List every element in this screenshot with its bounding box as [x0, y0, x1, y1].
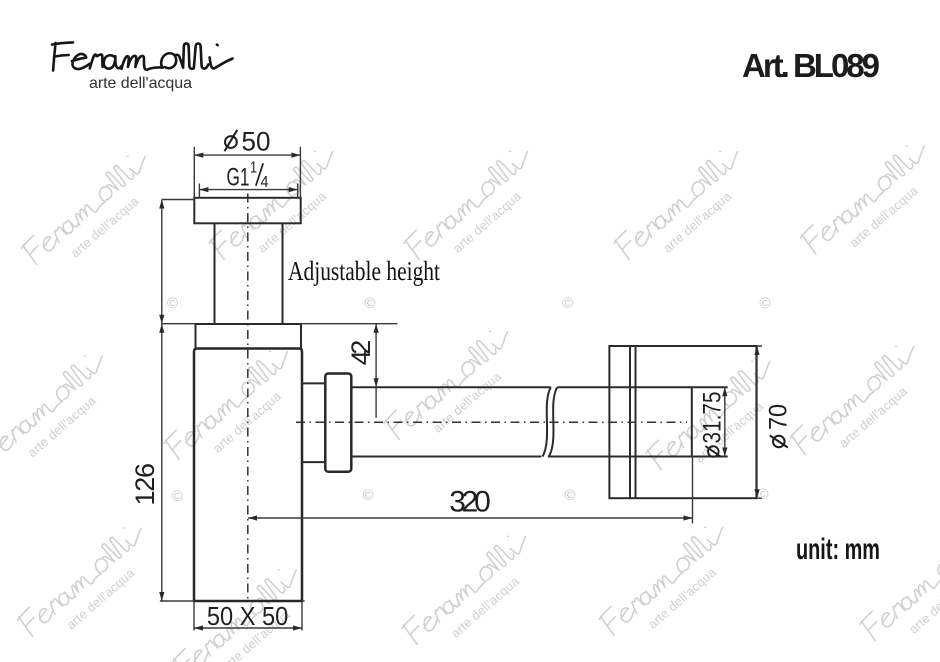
svg-text:50 X 50: 50 X 50	[207, 601, 288, 631]
svg-text:4: 4	[261, 174, 269, 191]
svg-text:1: 1	[250, 160, 257, 177]
svg-text:70: 70	[764, 404, 792, 430]
svg-text:©: ©	[564, 487, 575, 504]
svg-text:unit: mm: unit: mm	[796, 533, 880, 566]
svg-text:126: 126	[130, 463, 160, 506]
svg-text:42: 42	[346, 340, 376, 366]
svg-text:©: ©	[562, 295, 573, 312]
svg-text:©: ©	[167, 295, 178, 312]
svg-text:©: ©	[757, 486, 768, 503]
svg-text:©: ©	[364, 295, 375, 312]
svg-text:©: ©	[171, 488, 182, 505]
svg-text:©: ©	[759, 295, 770, 312]
svg-text:Art. BL089: Art. BL089	[742, 47, 880, 84]
svg-text:50: 50	[242, 127, 271, 157]
svg-text:arte dell'acqua: arte dell'acqua	[89, 75, 192, 92]
svg-text:©: ©	[362, 487, 373, 504]
svg-text:Adjustable height: Adjustable height	[288, 256, 440, 286]
svg-text:320: 320	[449, 486, 491, 519]
svg-text:31.75: 31.75	[698, 392, 726, 444]
svg-text:G1: G1	[227, 164, 250, 192]
